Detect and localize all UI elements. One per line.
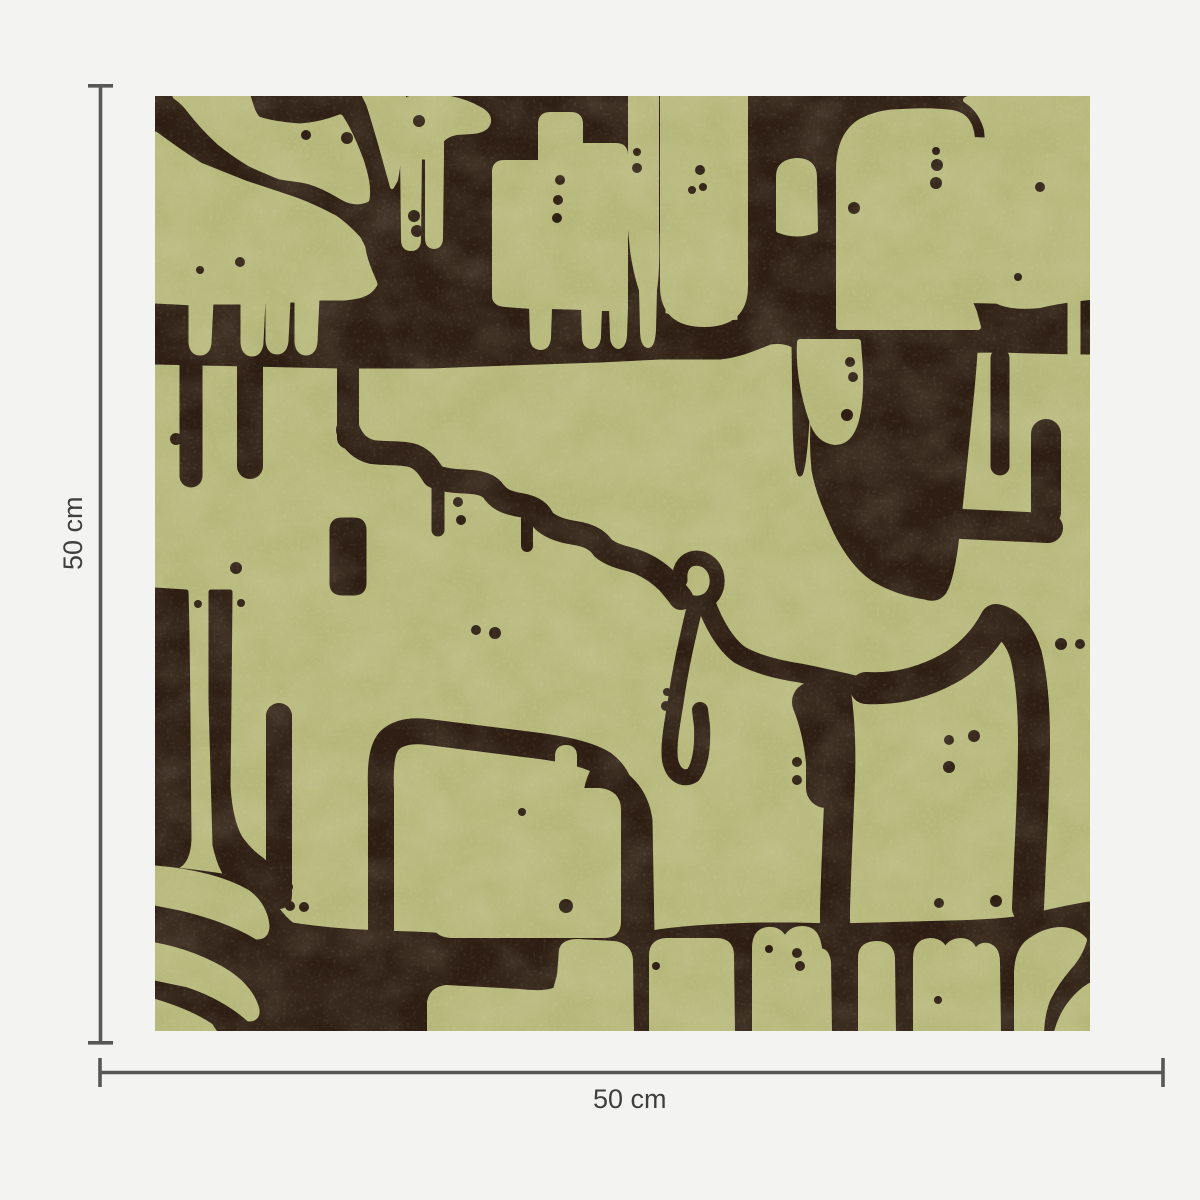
svg-text:50 cm: 50 cm	[593, 1084, 667, 1114]
svg-text:50 cm: 50 cm	[58, 496, 88, 570]
